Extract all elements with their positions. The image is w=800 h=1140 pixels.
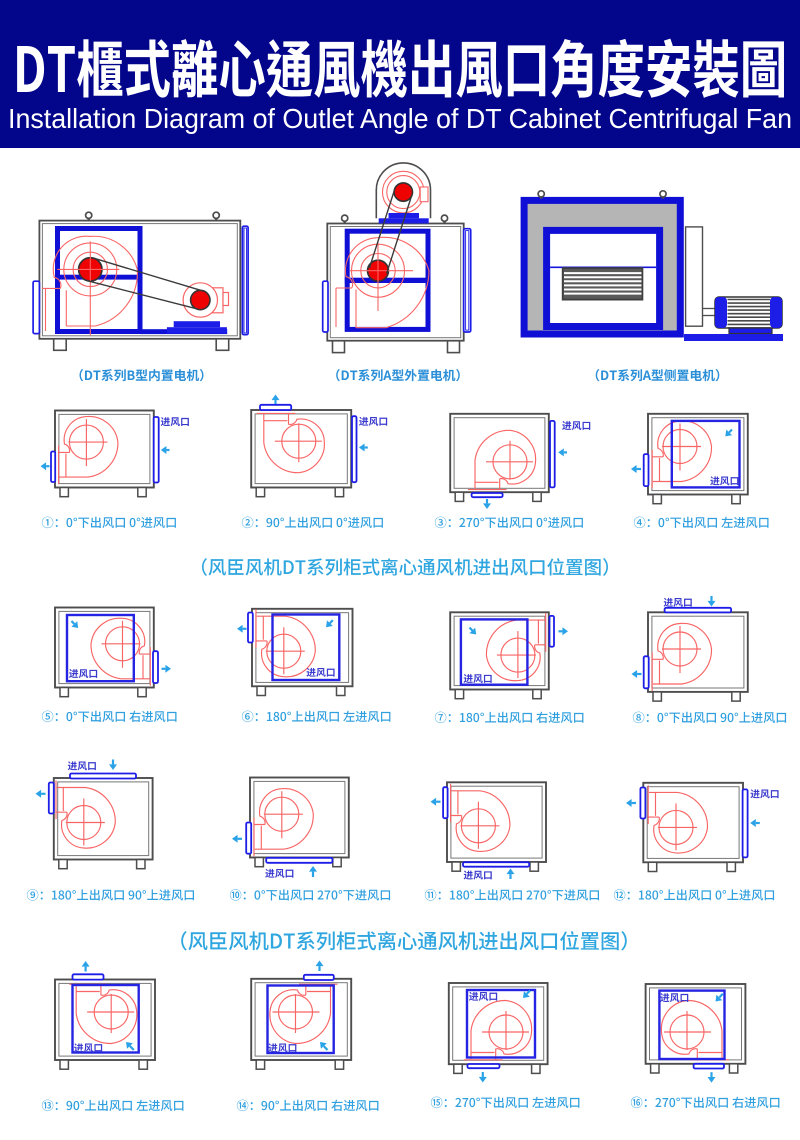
svg-text:Installation Diagram of Outlet: Installation Diagram of Outlet Angle of … — [8, 103, 792, 134]
